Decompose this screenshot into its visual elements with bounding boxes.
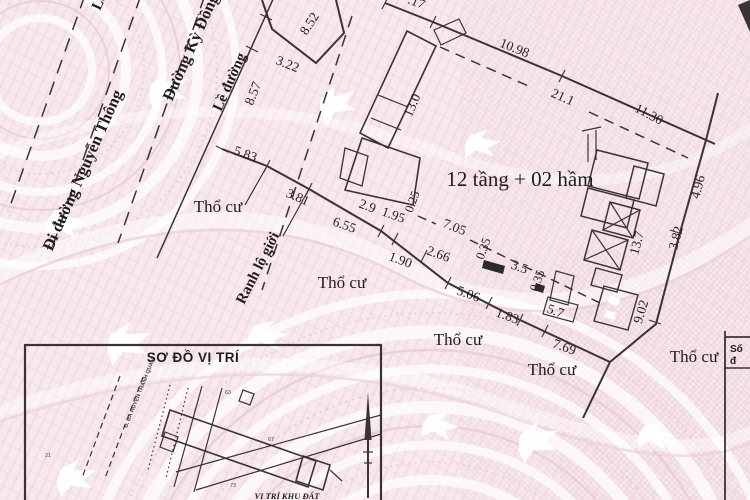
inset-lot-number: 73 <box>230 483 236 489</box>
land-use-label: Thổ cư <box>670 347 719 366</box>
dimension-label: 3.22 <box>274 52 302 75</box>
land-use-label: Thổ cư <box>318 273 367 292</box>
land-use-label: Thổ cư <box>194 197 243 216</box>
dimension-tick <box>378 225 384 237</box>
dimension-label: 8.52 <box>297 10 322 38</box>
land-use-label: Thổ cư <box>434 330 483 349</box>
inset-lot-number: 21 <box>45 453 51 459</box>
extension-line <box>245 166 267 205</box>
dimension-label: 0.25 <box>402 189 423 214</box>
dimension-label: 2.9 <box>357 196 378 216</box>
building-block-annex <box>340 148 368 186</box>
survey-drawing-canvas: Đi đường Nguyễn Thông Đường Kỳ Đồng Lề đ… <box>0 0 750 500</box>
setback-line-7-05-a <box>418 216 436 224</box>
building-note: 12 tầng + 02 hầm <box>446 167 593 191</box>
land-use-label: Thổ cư <box>528 360 577 379</box>
survey-drawing-page: Đi đường Nguyễn Thông Đường Kỳ Đồng Lề đ… <box>0 0 750 500</box>
inset-lot-number: 63 <box>225 390 231 396</box>
dimension-label: .17 <box>406 0 427 12</box>
inset-lot-number: 67 <box>268 437 274 443</box>
title-block-text-2: đ <box>730 356 737 367</box>
dimension-label: 13.0 <box>400 91 423 119</box>
inset-title: SƠ ĐỒ VỊ TRÍ <box>147 350 240 365</box>
inset-street-label: Đ. BÀ HUYỆN THANH QUAN <box>121 357 156 429</box>
inset-caption: VỊ TRÍ KHU ĐẤT <box>255 491 321 500</box>
row-boundary-label: Ranh lộ giới <box>233 230 283 307</box>
north-arrow <box>363 392 373 498</box>
dimension-label: 8.57 <box>241 79 264 107</box>
dimension-label: 2.66 <box>425 243 453 265</box>
title-block-text-1: Số <box>730 343 743 355</box>
